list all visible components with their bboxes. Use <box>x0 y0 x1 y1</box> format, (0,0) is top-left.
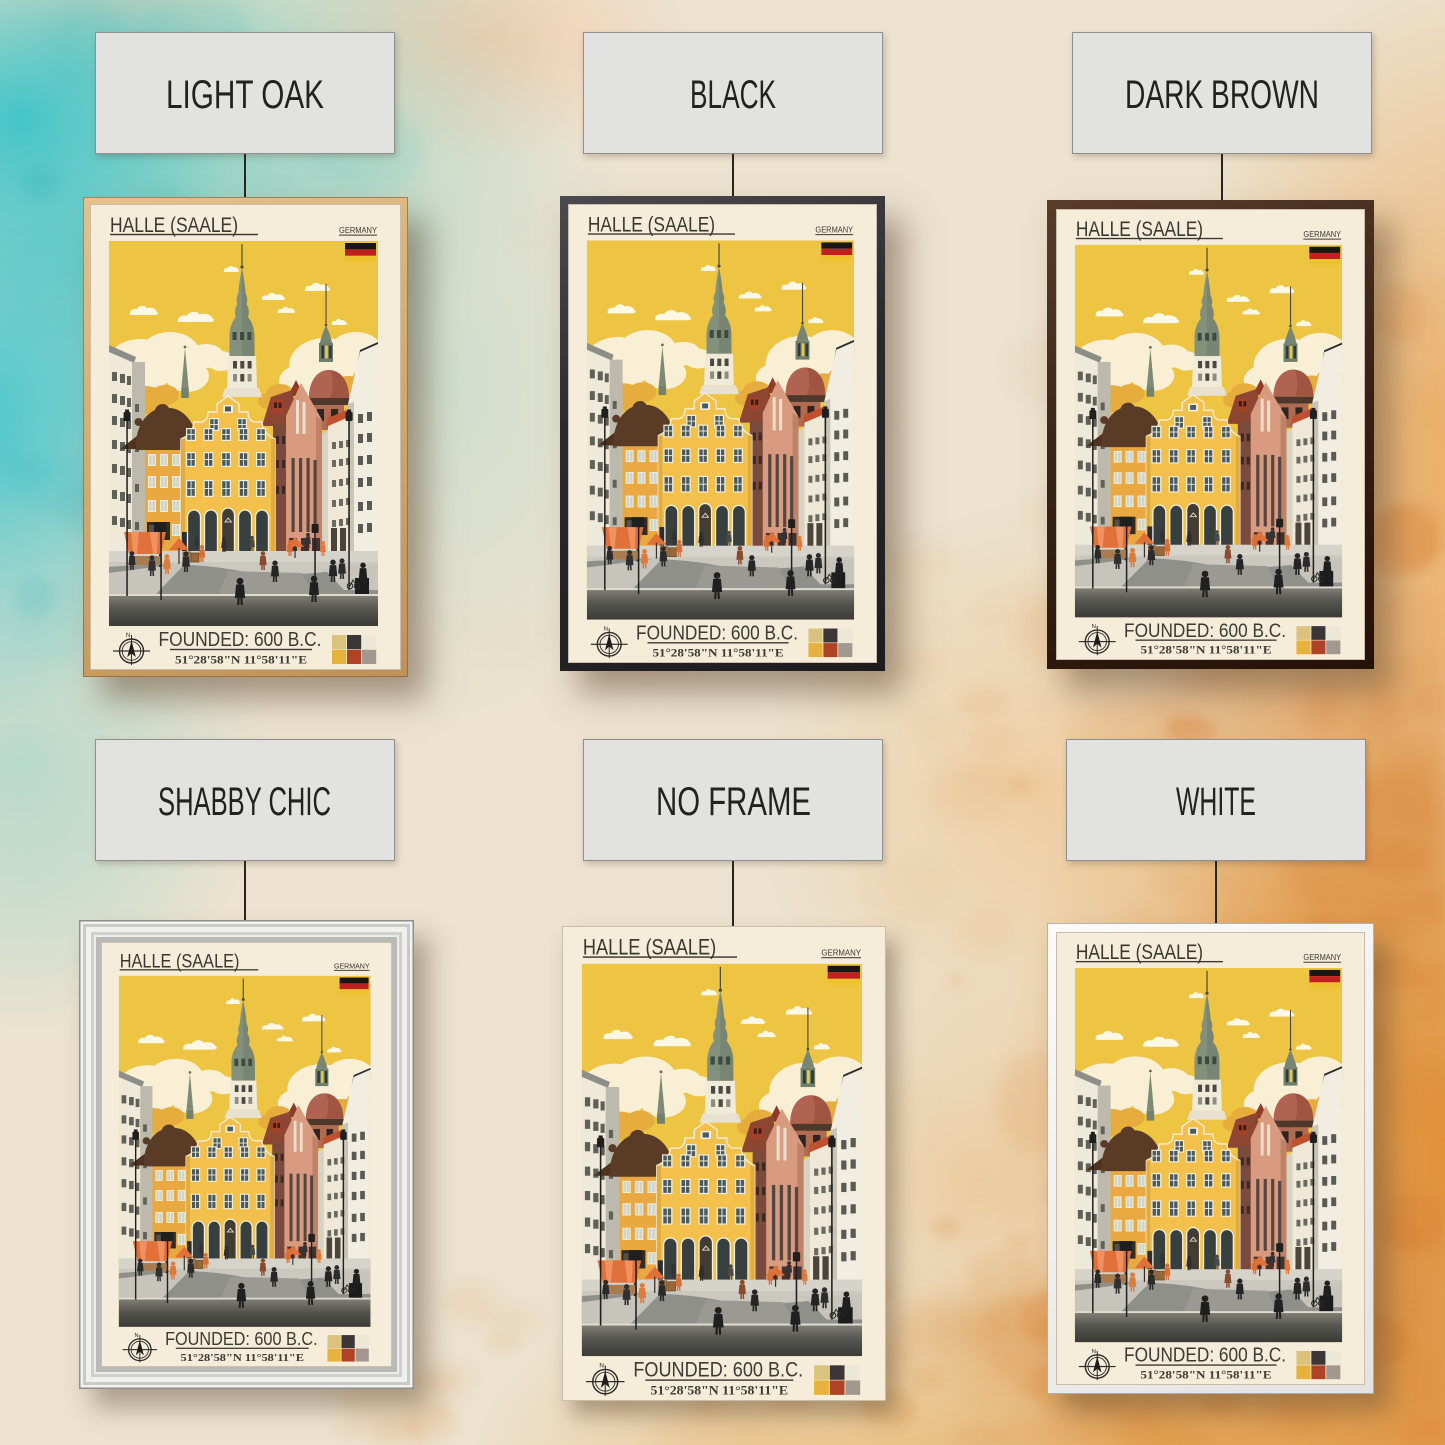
svg-text:LIGHT OAK: LIGHT OAK <box>166 73 324 117</box>
svg-text:WHITE: WHITE <box>1176 780 1256 824</box>
svg-text:NO FRAME: NO FRAME <box>656 780 811 824</box>
svg-text:BLACK: BLACK <box>690 73 776 117</box>
svg-text:DARK BROWN: DARK BROWN <box>1125 73 1319 117</box>
svg-text:SHABBY CHIC: SHABBY CHIC <box>158 780 331 824</box>
